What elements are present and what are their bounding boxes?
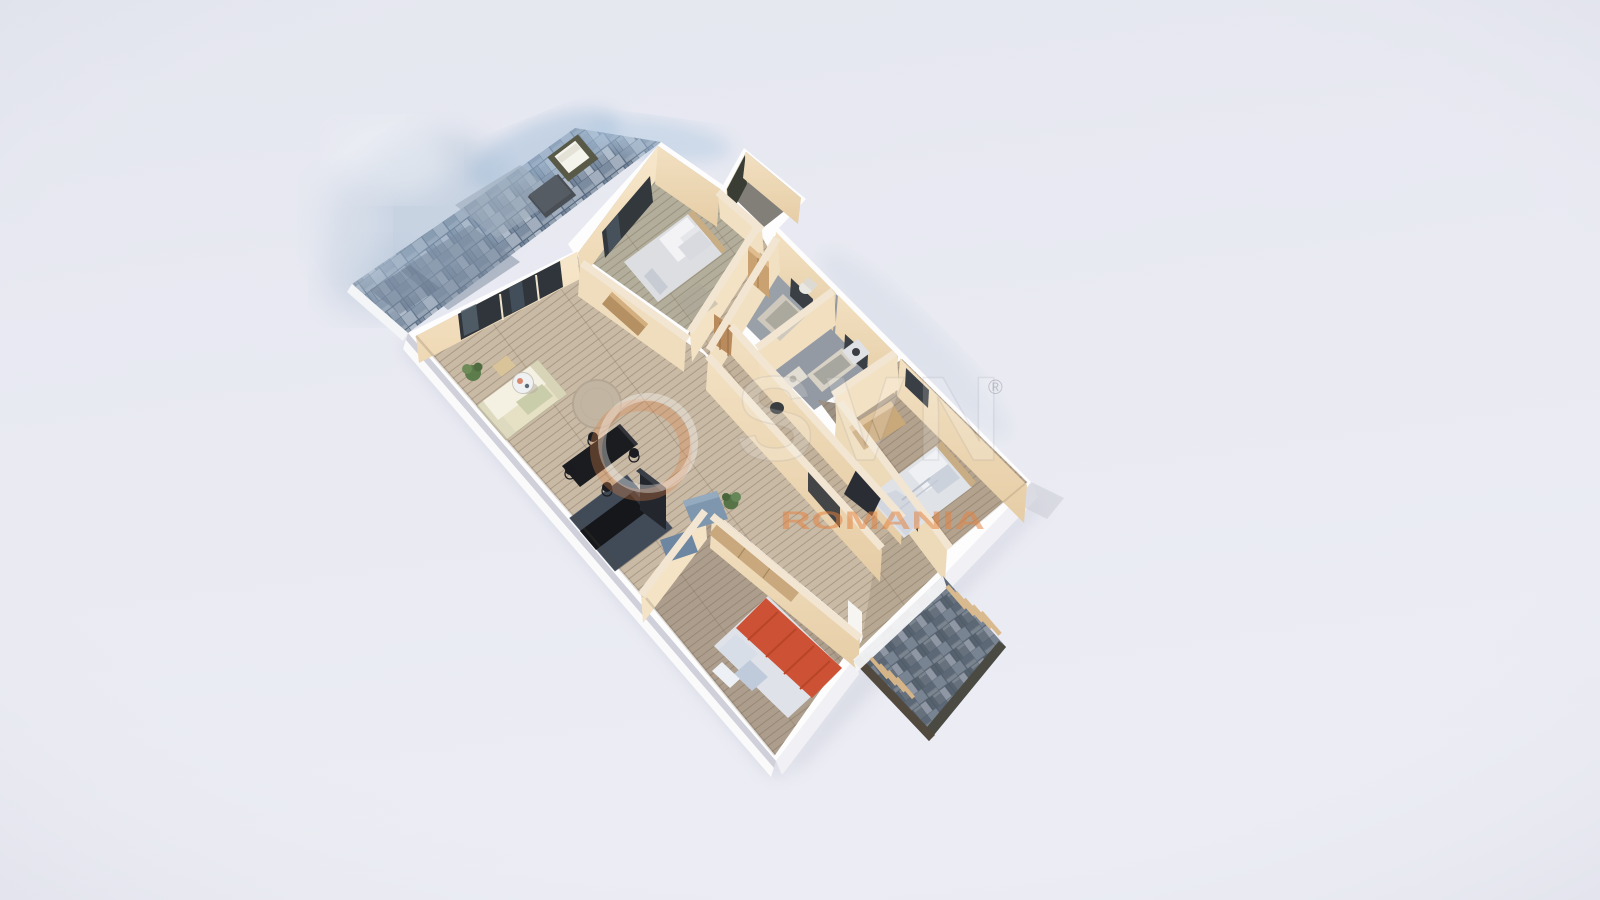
svg-text:SVN: SVN	[735, 352, 1012, 486]
svg-text:®: ®	[988, 377, 1003, 399]
svg-text:ROMANIA: ROMANIA	[780, 507, 985, 535]
